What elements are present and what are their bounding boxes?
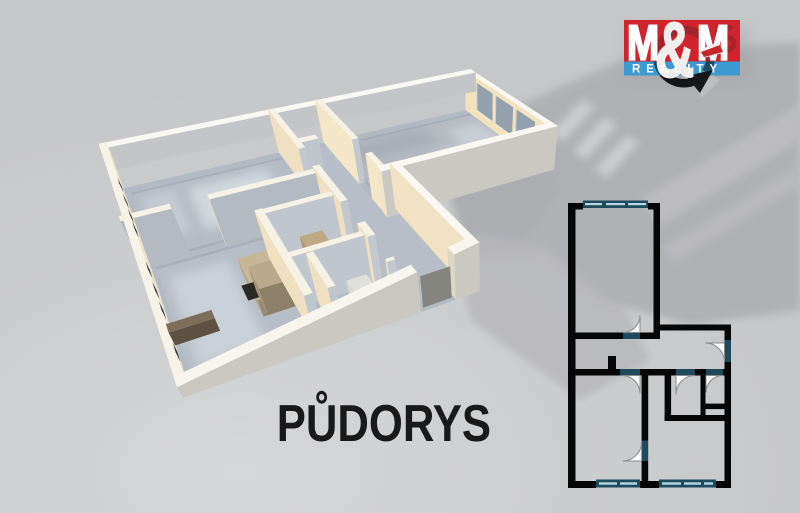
svg-text:REALITY: REALITY	[632, 64, 723, 76]
svg-text:M: M	[697, 16, 729, 71]
svg-text:&: &	[655, 7, 694, 94]
svg-text:PŮDORYS: PŮDORYS	[277, 389, 491, 453]
